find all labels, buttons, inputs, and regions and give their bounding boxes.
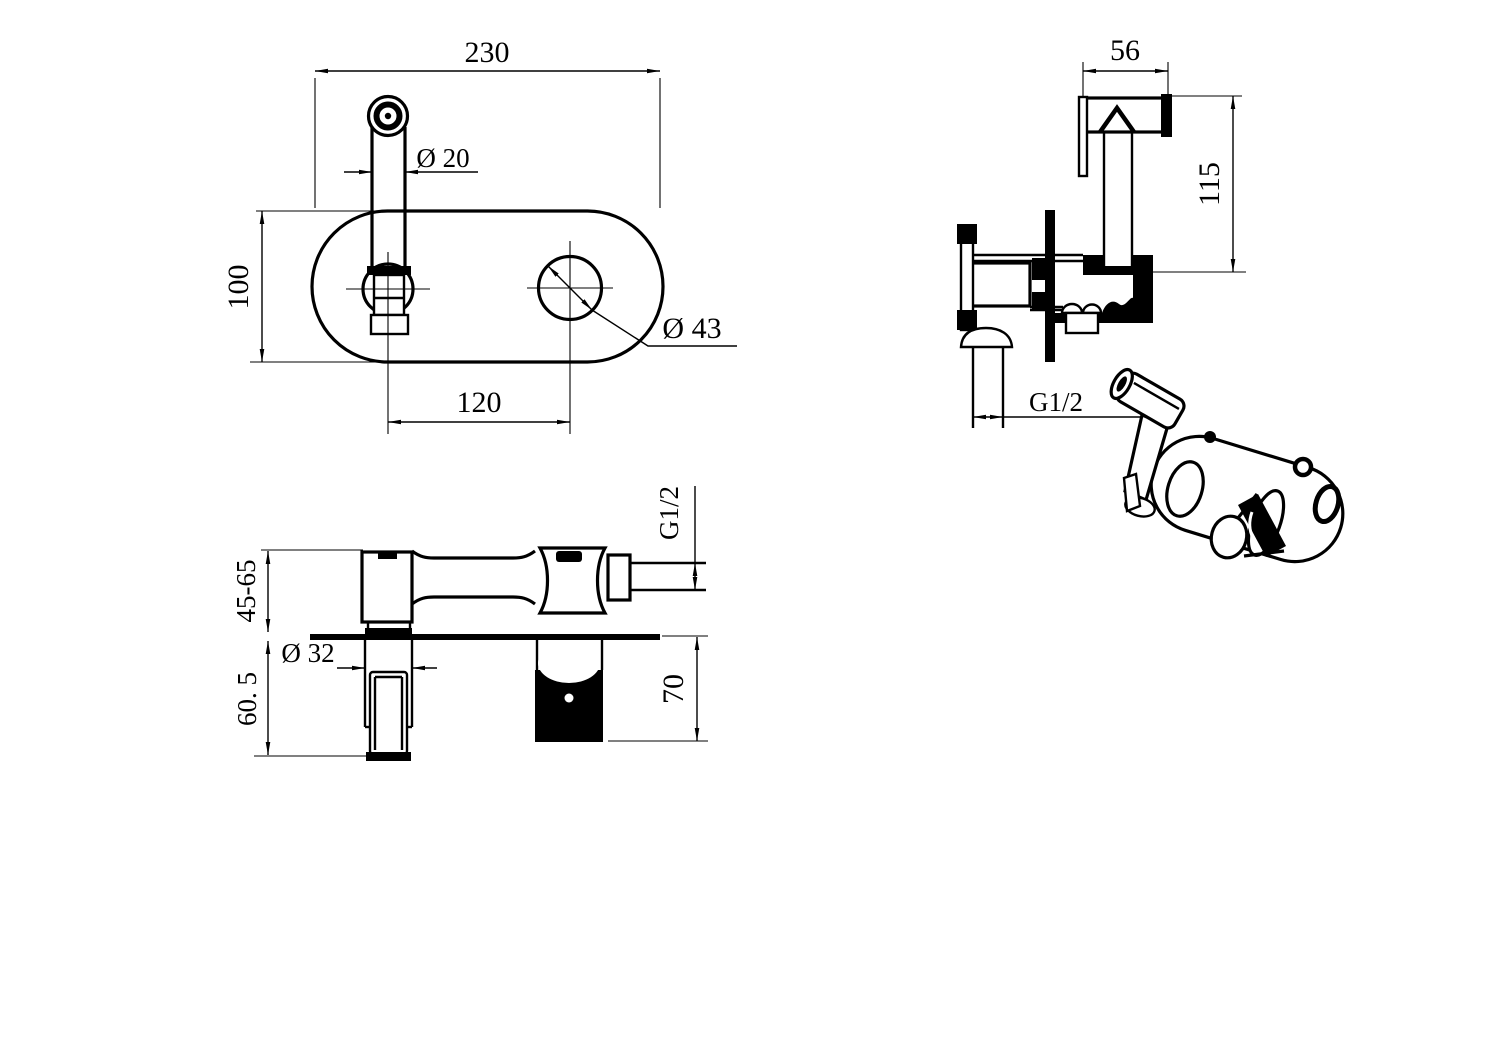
- front-hole-diameter-dim: Ø 43: [662, 312, 721, 345]
- handle-front: [374, 275, 404, 315]
- side-height-dim: 115: [1193, 162, 1226, 206]
- section-outlet-thread-dim: G1/2: [654, 486, 684, 540]
- front-plate-height-dim: 100: [222, 265, 255, 310]
- nozzle-cap: [1161, 94, 1172, 137]
- left-valve-section: [362, 552, 412, 622]
- front-plate-width-dim: 230: [465, 36, 510, 69]
- section-trim-diameter-dim: Ø 32: [281, 638, 334, 668]
- section-body-depth-dim: 70: [657, 674, 690, 704]
- front-view: 230 Ø 20 100 120 Ø 43: [222, 36, 737, 434]
- section-view: 45-65 60. 5 Ø 32 70 G1/2: [231, 486, 708, 761]
- side-head-length-dim: 56: [1110, 34, 1140, 67]
- drawing-canvas: 230 Ø 20 100 120 Ø 43: [0, 0, 1497, 1058]
- side-view: 56 115 G1/2: [957, 34, 1246, 428]
- plate-section: [310, 634, 660, 640]
- trigger-strip: [1079, 97, 1087, 176]
- outlet-fitting: [1066, 313, 1098, 333]
- perspective-view: [1107, 366, 1355, 573]
- front-spout-diameter-dim: Ø 20: [416, 143, 469, 173]
- inlet-dome: [961, 328, 1012, 347]
- plate-edge: [1045, 210, 1055, 362]
- section-handle-depth-dim: 60. 5: [232, 672, 262, 726]
- front-hole-spacing-dim: 120: [457, 386, 502, 419]
- section-depth-range-dim: 45-65: [231, 560, 261, 623]
- valve-body-side: [967, 263, 1030, 306]
- technical-drawing: 230 Ø 20 100 120 Ø 43: [0, 0, 1497, 1058]
- side-inlet-thread-dim: G1/2: [1029, 387, 1083, 417]
